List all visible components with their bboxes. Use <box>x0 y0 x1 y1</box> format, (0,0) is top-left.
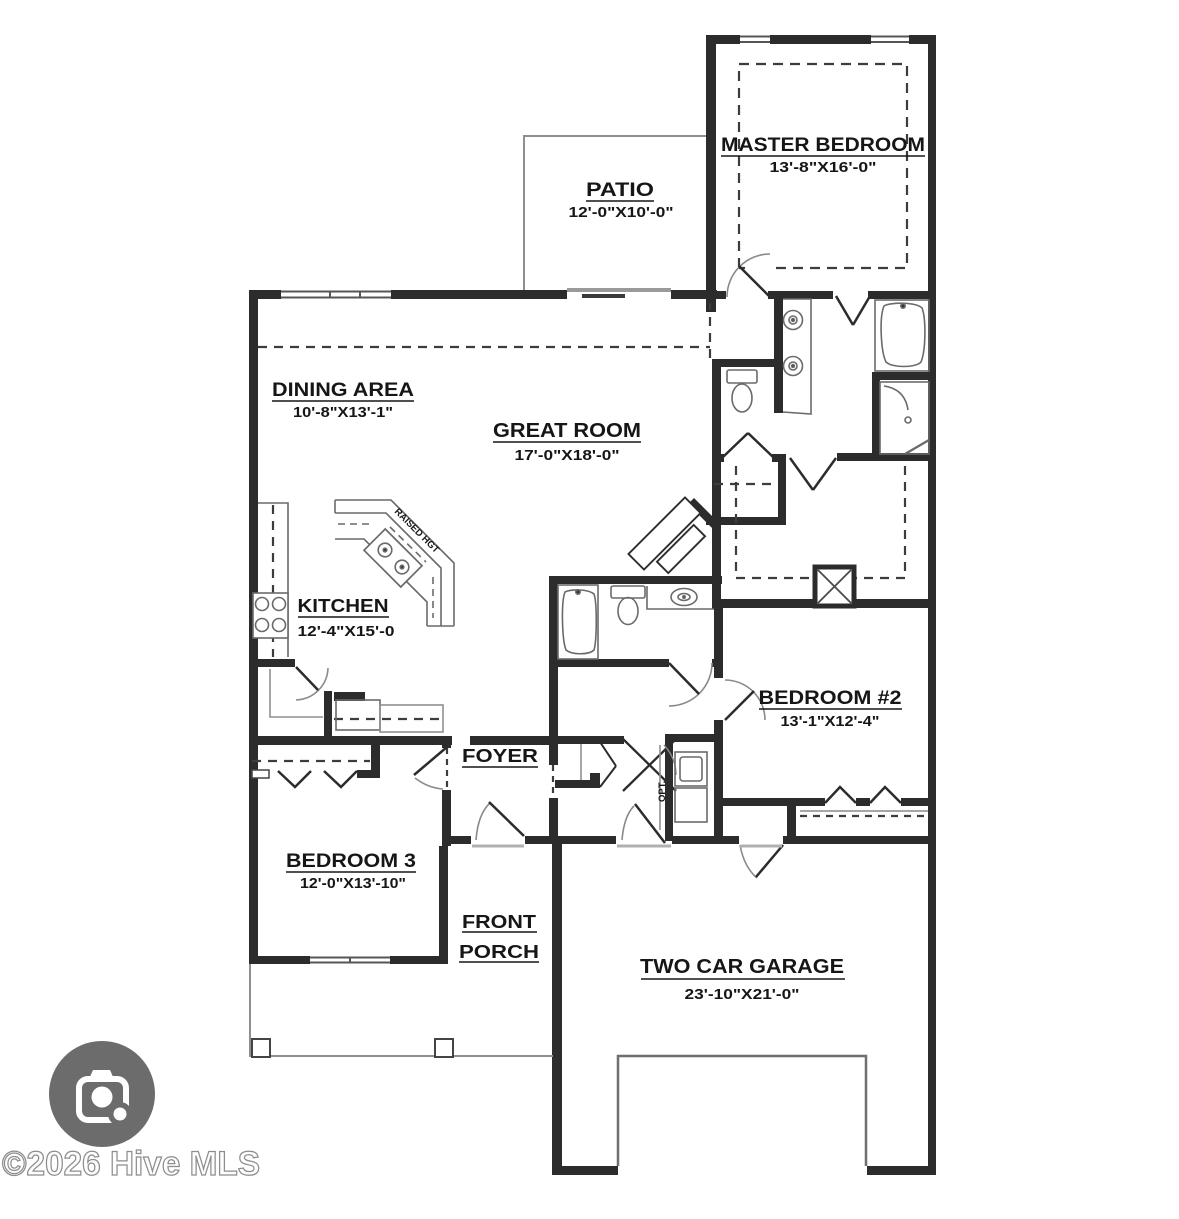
svg-text:23'-10"X21'-0": 23'-10"X21'-0" <box>685 986 800 1003</box>
svg-text:©2026 Hive MLS: ©2026 Hive MLS <box>2 1145 260 1183</box>
svg-text:MASTER BEDROOM: MASTER BEDROOM <box>721 135 925 156</box>
svg-text:13'-1"X12'-4": 13'-1"X12'-4" <box>781 714 880 730</box>
svg-text:KITCHEN: KITCHEN <box>298 596 389 616</box>
svg-text:TWO CAR GARAGE: TWO CAR GARAGE <box>640 956 844 978</box>
svg-text:13'-8"X16'-0": 13'-8"X16'-0" <box>770 160 877 176</box>
svg-text:OPT.: OPT. <box>657 781 668 802</box>
svg-text:10'-8"X13'-1": 10'-8"X13'-1" <box>293 405 393 421</box>
svg-text:PORCH: PORCH <box>459 942 539 962</box>
svg-text:FRONT: FRONT <box>462 912 536 932</box>
svg-text:FOYER: FOYER <box>462 746 538 766</box>
svg-text:12'-0"X13'-10": 12'-0"X13'-10" <box>300 876 406 892</box>
svg-text:BEDROOM #2: BEDROOM #2 <box>759 688 902 709</box>
svg-text:BEDROOM 3: BEDROOM 3 <box>286 851 416 872</box>
svg-text:12'-0"X10'-0": 12'-0"X10'-0" <box>569 205 674 221</box>
svg-text:12'-4"X15'-0: 12'-4"X15'-0 <box>298 624 395 640</box>
svg-text:PATIO: PATIO <box>586 180 654 201</box>
svg-text:17'-0"X18'-0": 17'-0"X18'-0" <box>515 447 620 464</box>
svg-text:DINING AREA: DINING AREA <box>272 380 414 401</box>
svg-text:GREAT ROOM: GREAT ROOM <box>493 420 641 442</box>
